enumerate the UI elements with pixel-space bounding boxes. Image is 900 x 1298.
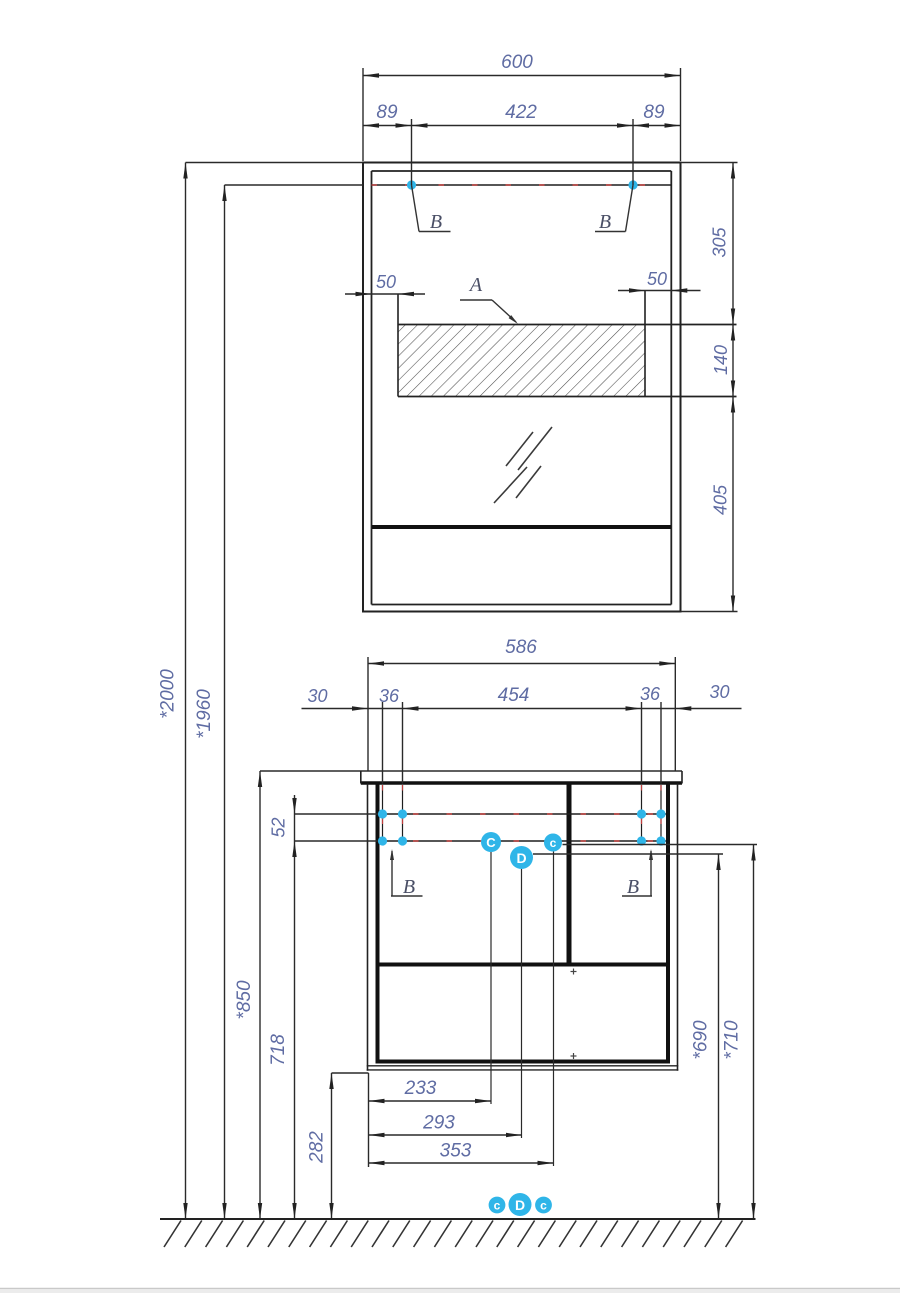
svg-text:B: B xyxy=(599,211,611,233)
svg-text:*710: *710 xyxy=(722,1020,743,1060)
svg-text:52: 52 xyxy=(269,817,289,837)
svg-text:*1960: *1960 xyxy=(194,689,215,739)
svg-text:c: c xyxy=(540,1199,547,1213)
svg-text:50: 50 xyxy=(647,269,667,289)
svg-text:140: 140 xyxy=(711,345,731,375)
svg-text:50: 50 xyxy=(376,272,396,292)
svg-text:B: B xyxy=(403,876,415,898)
svg-text:305: 305 xyxy=(710,227,730,258)
svg-text:36: 36 xyxy=(379,686,400,706)
svg-text:A: A xyxy=(468,274,483,296)
svg-text:718: 718 xyxy=(268,1034,289,1066)
svg-text:30: 30 xyxy=(307,686,327,706)
svg-text:c: c xyxy=(550,836,557,850)
svg-text:600: 600 xyxy=(501,52,533,73)
svg-text:89: 89 xyxy=(643,102,665,123)
svg-text:405: 405 xyxy=(711,484,731,515)
svg-text:*2000: *2000 xyxy=(158,669,179,719)
svg-text:282: 282 xyxy=(307,1131,328,1164)
svg-text:D: D xyxy=(516,850,526,866)
svg-text:89: 89 xyxy=(376,102,398,123)
svg-text:*690: *690 xyxy=(691,1020,712,1060)
svg-text:586: 586 xyxy=(505,637,537,658)
svg-text:C: C xyxy=(486,835,496,850)
svg-text:B: B xyxy=(627,876,639,898)
svg-text:353: 353 xyxy=(440,1141,472,1162)
svg-text:D: D xyxy=(515,1197,525,1213)
svg-text:c: c xyxy=(494,1199,501,1213)
svg-text:233: 233 xyxy=(404,1078,437,1099)
svg-text:36: 36 xyxy=(640,684,661,704)
svg-text:B: B xyxy=(430,211,442,233)
svg-text:422: 422 xyxy=(505,102,537,123)
svg-text:30: 30 xyxy=(709,682,729,702)
svg-text:*850: *850 xyxy=(234,980,255,1020)
svg-text:454: 454 xyxy=(498,685,530,706)
svg-text:293: 293 xyxy=(422,1113,455,1134)
